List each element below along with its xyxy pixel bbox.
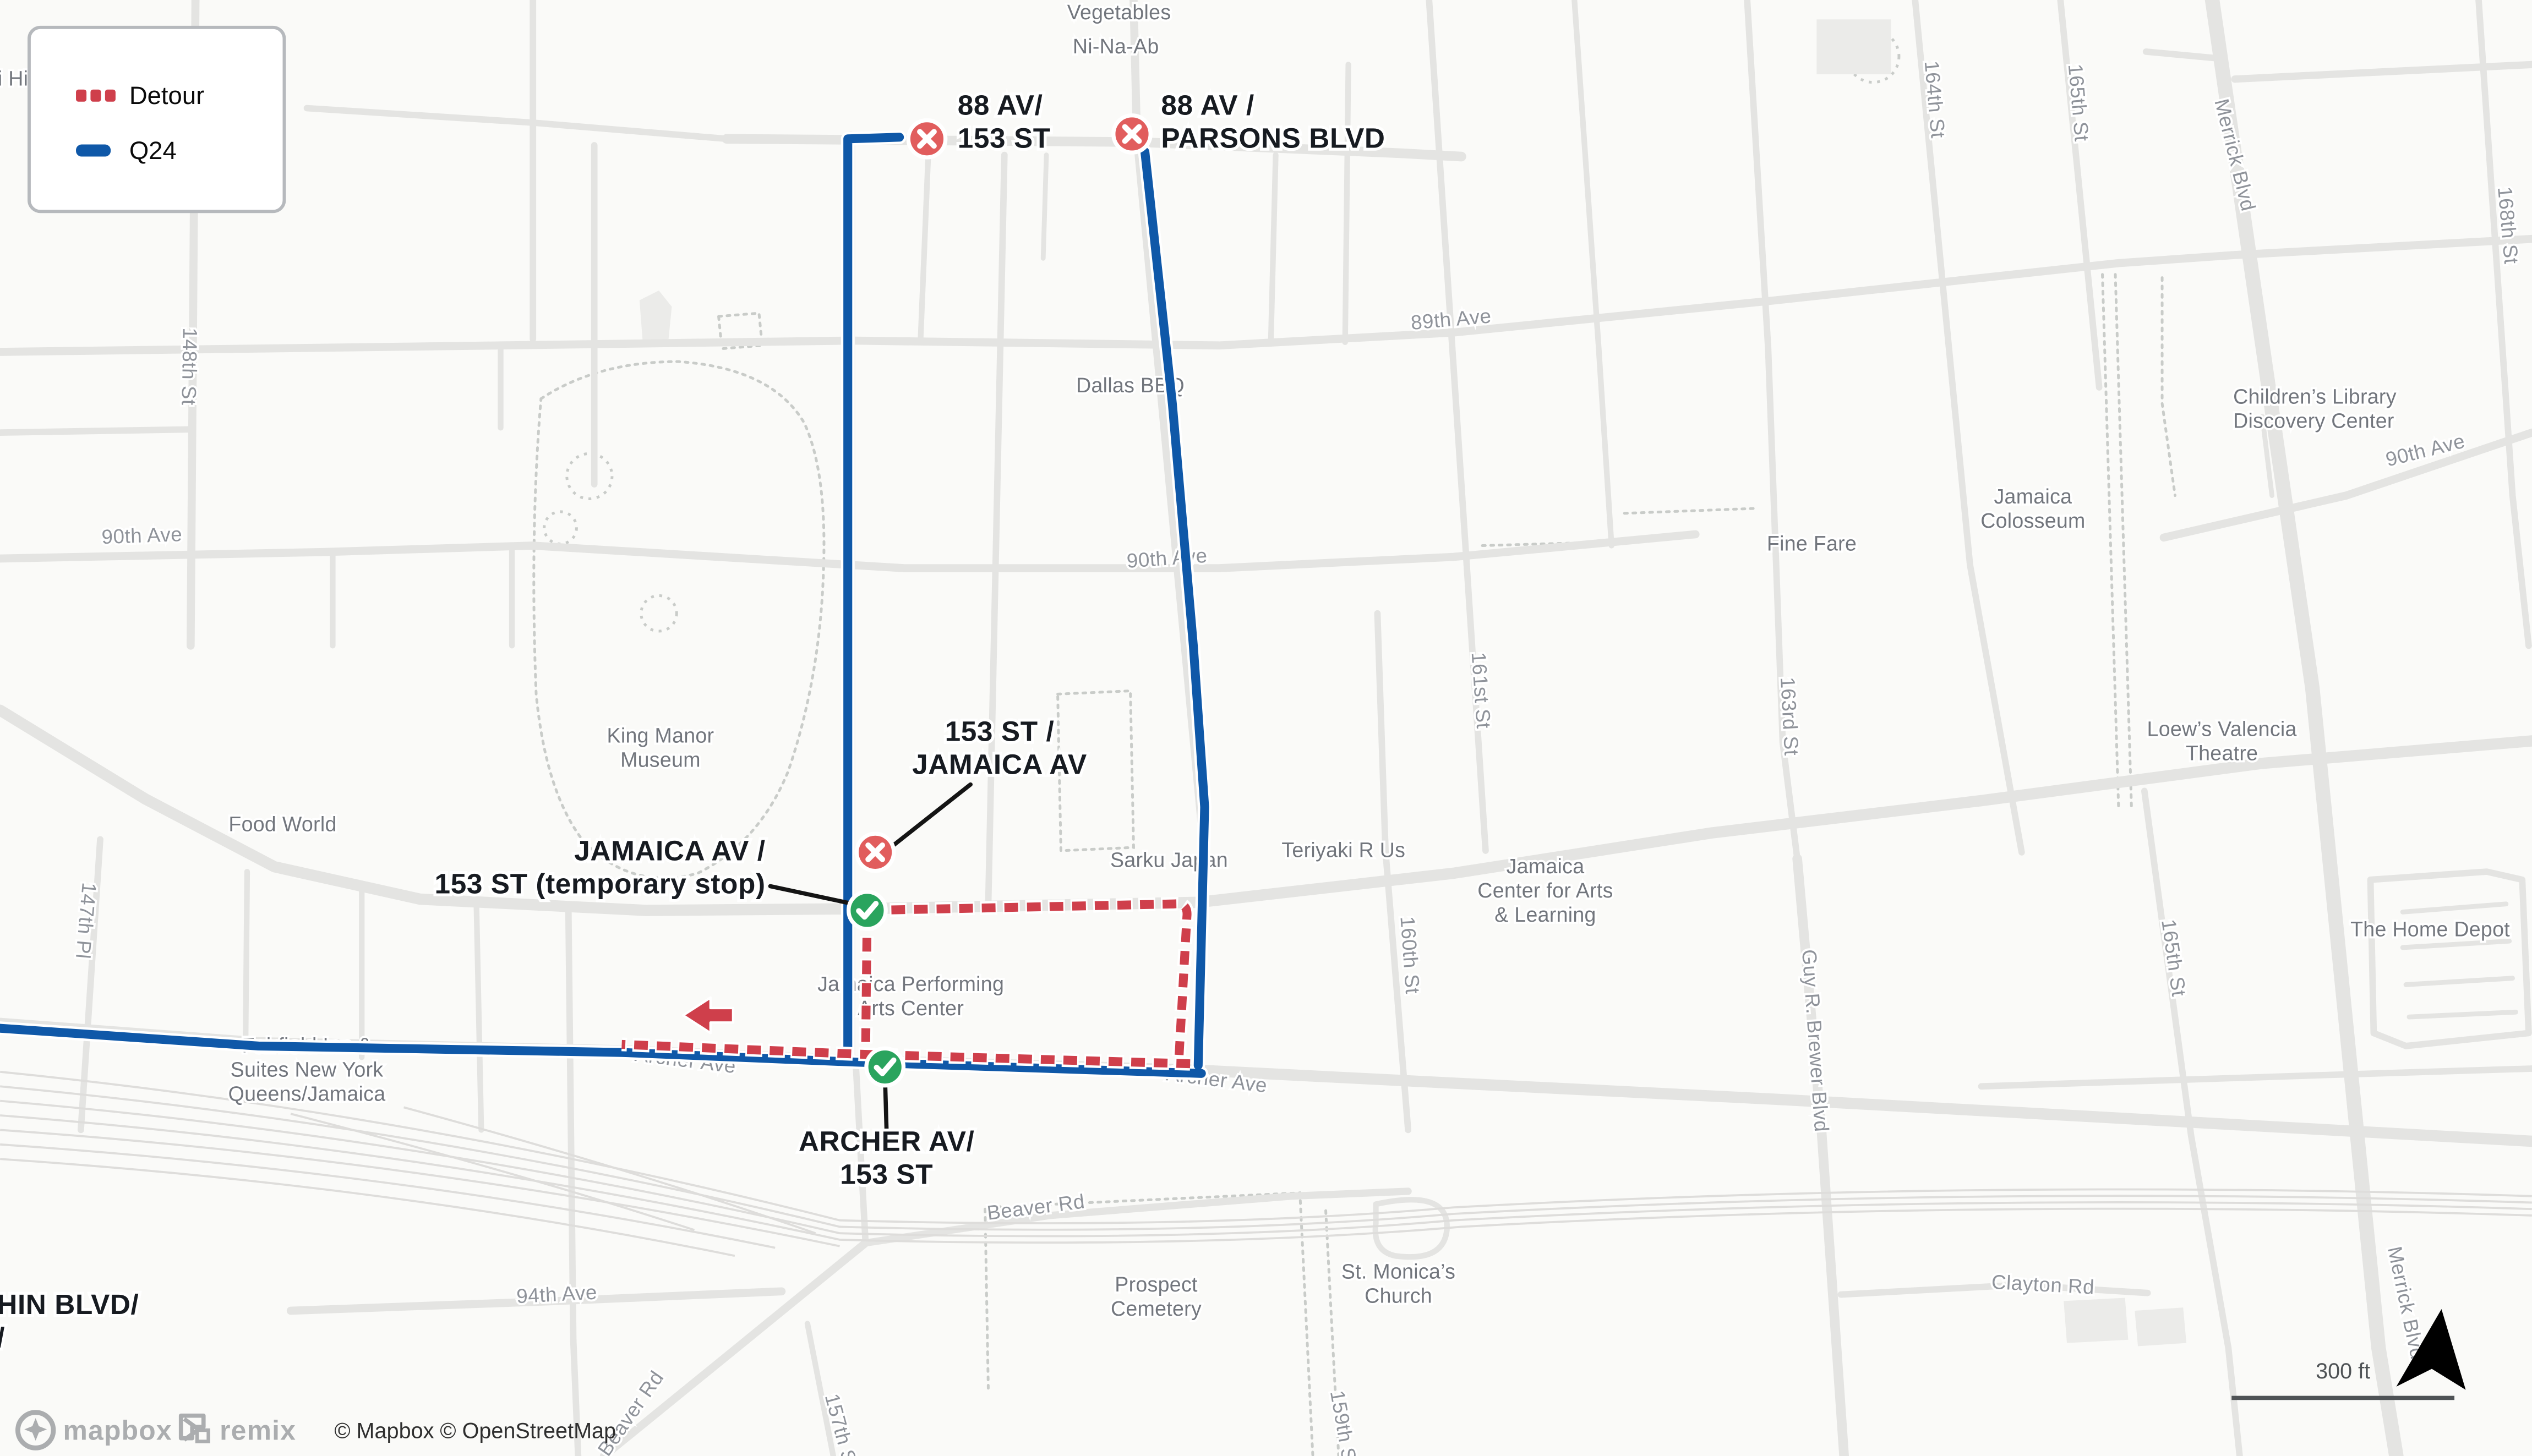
cancelled-stop-marker-x-icon — [856, 834, 893, 871]
road — [0, 429, 190, 433]
legend-detour-label: Detour — [129, 81, 204, 110]
building — [1816, 19, 1891, 74]
building — [2064, 1298, 2128, 1343]
street-label: 94th Ave — [516, 1281, 598, 1308]
poi-label: ProspectCemetery — [1111, 1273, 1202, 1320]
mapbox-wordmark[interactable]: mapbox — [63, 1415, 172, 1446]
cancelled-stop-marker-x-icon — [908, 121, 945, 157]
attribution-links[interactable]: © Mapbox © OpenStreetMap — [334, 1419, 616, 1443]
street-label: 163rd St — [1776, 676, 1803, 756]
legend-q24-label: Q24 — [129, 136, 177, 165]
poi-label: Ni-Na-Ab — [1073, 35, 1159, 58]
legend-box — [29, 28, 284, 211]
scale-bar-label: 300 ft — [2316, 1359, 2370, 1383]
legend: Detour Q24 — [29, 28, 284, 211]
poi-label: Fruit &Vegetables — [1067, 0, 1171, 24]
poi-label: Teriyaki R Us — [1281, 839, 1405, 862]
street-label: 148th St — [177, 327, 201, 406]
road — [1043, 155, 1046, 259]
building — [2135, 1307, 2186, 1346]
q24-solid-swatch-icon — [76, 145, 111, 157]
cancelled-stop-marker-x-icon — [1114, 116, 1150, 152]
temporary-stop-marker-check-icon — [849, 892, 886, 929]
road — [1345, 64, 1349, 342]
remix-wordmark: remix — [220, 1415, 296, 1446]
map-canvas[interactable]: 148th St147th Pl90th Ave90th Ave90th Ave… — [0, 0, 2532, 1456]
street-label: 90th Ave — [101, 523, 183, 548]
poi-label: Fine Fare — [1767, 532, 1857, 555]
poi-label: The Home Depot — [2350, 917, 2510, 940]
poi-label: Food World — [228, 813, 336, 836]
detour-dashed-swatch-icon — [76, 90, 116, 102]
poi-label: i Hi — [0, 67, 28, 90]
temporary-stop-marker-check-icon — [866, 1048, 903, 1085]
road — [245, 872, 247, 1049]
map-root: 148th St147th Pl90th Ave90th Ave90th Ave… — [0, 0, 2532, 1456]
